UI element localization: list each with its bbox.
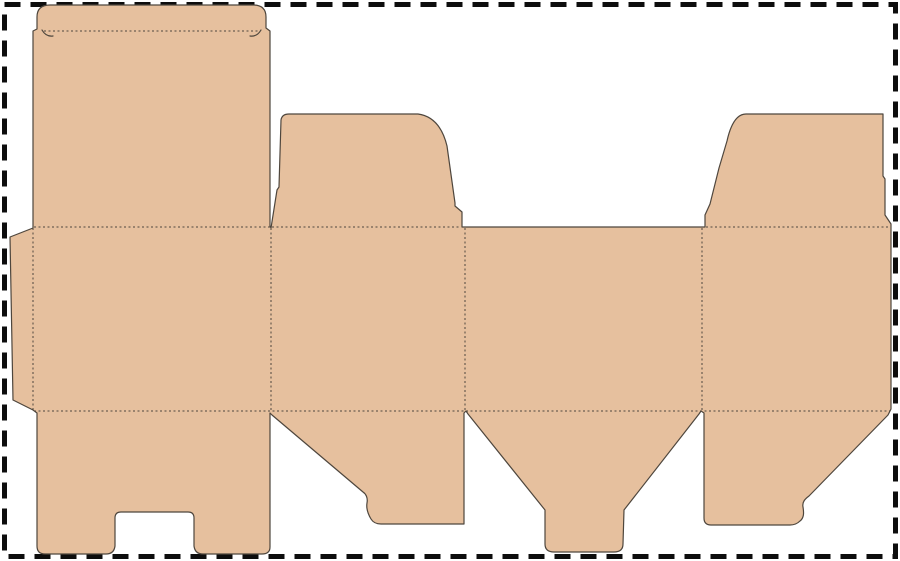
screenshot-page xyxy=(0,0,900,561)
dieline-canvas xyxy=(0,0,900,561)
